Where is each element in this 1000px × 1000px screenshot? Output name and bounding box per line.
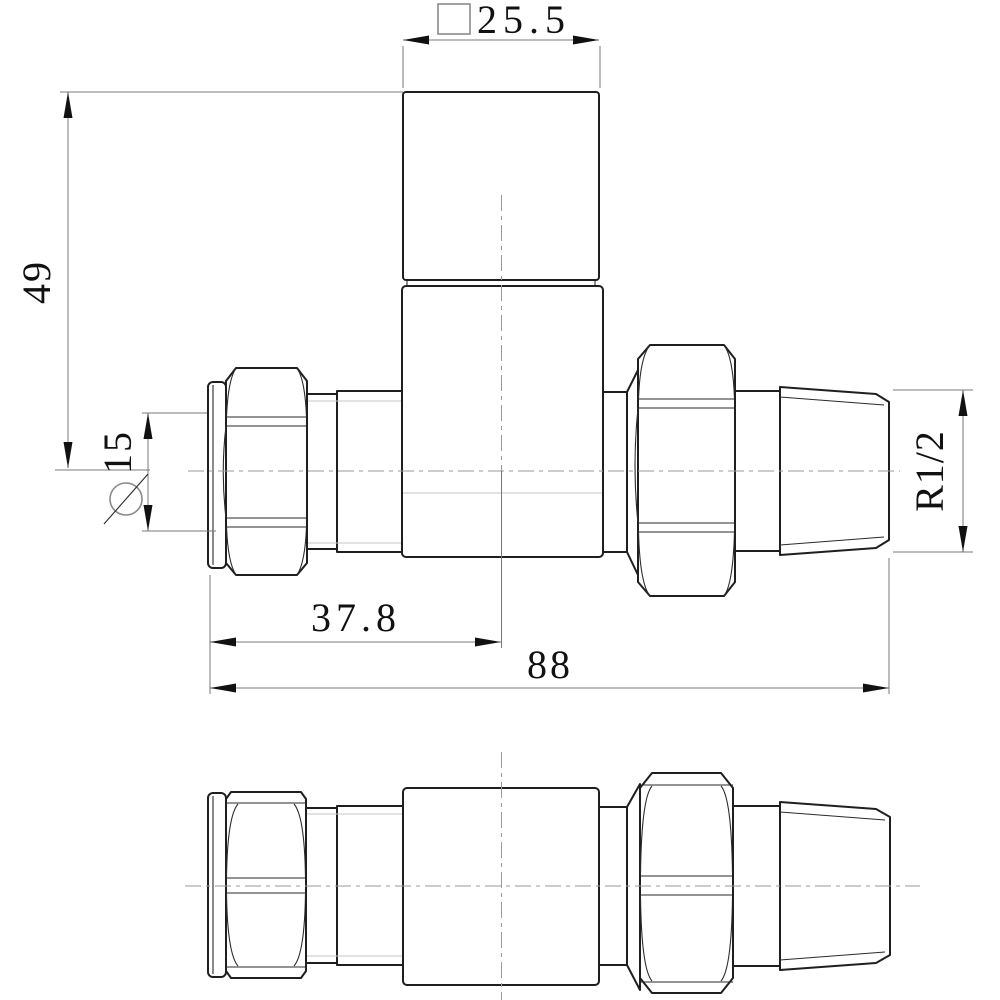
square-symbol — [438, 4, 470, 34]
dim-thread-value: R1/2 — [907, 430, 952, 512]
bottom-view — [208, 773, 890, 993]
dim-arrow — [64, 92, 73, 118]
dim-pipe-diameter: 15 — [95, 413, 216, 531]
dim-center-offset: 37.8 — [210, 575, 501, 694]
dim-overall-length-value: 88 — [527, 642, 573, 687]
dim-arrow — [475, 638, 501, 647]
top-view — [208, 92, 889, 596]
dim-arrow — [863, 684, 889, 693]
top-valve-head — [403, 92, 599, 280]
top-hex-nut-left — [226, 368, 307, 575]
dim-thread-size: R1/2 — [893, 390, 973, 552]
dim-arrow — [403, 36, 429, 45]
dim-diameter-value: 15 — [95, 430, 140, 474]
drawing-svg: 25.5 49 15 — [0, 0, 1000, 1000]
dim-arrow — [959, 526, 968, 552]
dim-arrow — [64, 442, 73, 468]
dim-head-square-value: 25.5 — [477, 0, 571, 42]
dim-head-square: 25.5 — [403, 0, 600, 88]
top-valve-body — [402, 286, 603, 557]
bottom-flange-cone — [627, 784, 640, 990]
dim-arrow — [210, 638, 236, 647]
bottom-hex-nut-left — [226, 792, 306, 978]
dim-height-value: 49 — [14, 260, 59, 304]
dim-arrow — [959, 390, 968, 416]
dim-arrow — [573, 36, 599, 45]
dim-center-offset-value: 37.8 — [311, 595, 401, 640]
dim-arrow — [144, 413, 153, 439]
bottom-hex-nut-right — [640, 773, 733, 993]
top-cylinder-c — [603, 392, 627, 552]
bottom-endcap — [208, 793, 226, 977]
top-flange-cone — [627, 370, 638, 575]
diameter-symbol — [104, 474, 148, 524]
dim-arrow — [210, 684, 236, 693]
dim-arrow — [144, 505, 153, 531]
technical-drawing: 25.5 49 15 — [0, 0, 1000, 1000]
